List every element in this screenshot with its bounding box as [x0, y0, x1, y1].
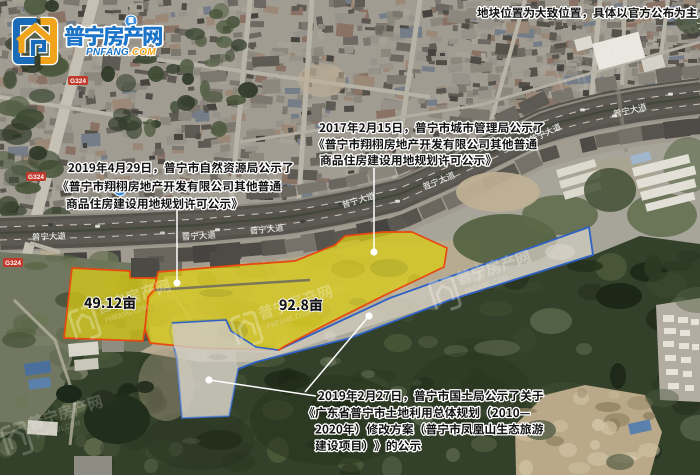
svg-text:G324: G324 [28, 174, 44, 181]
svg-text:G324: G324 [5, 260, 21, 267]
svg-text:PNFANG.COM: PNFANG.COM [86, 47, 156, 58]
svg-text:G324: G324 [70, 78, 86, 85]
